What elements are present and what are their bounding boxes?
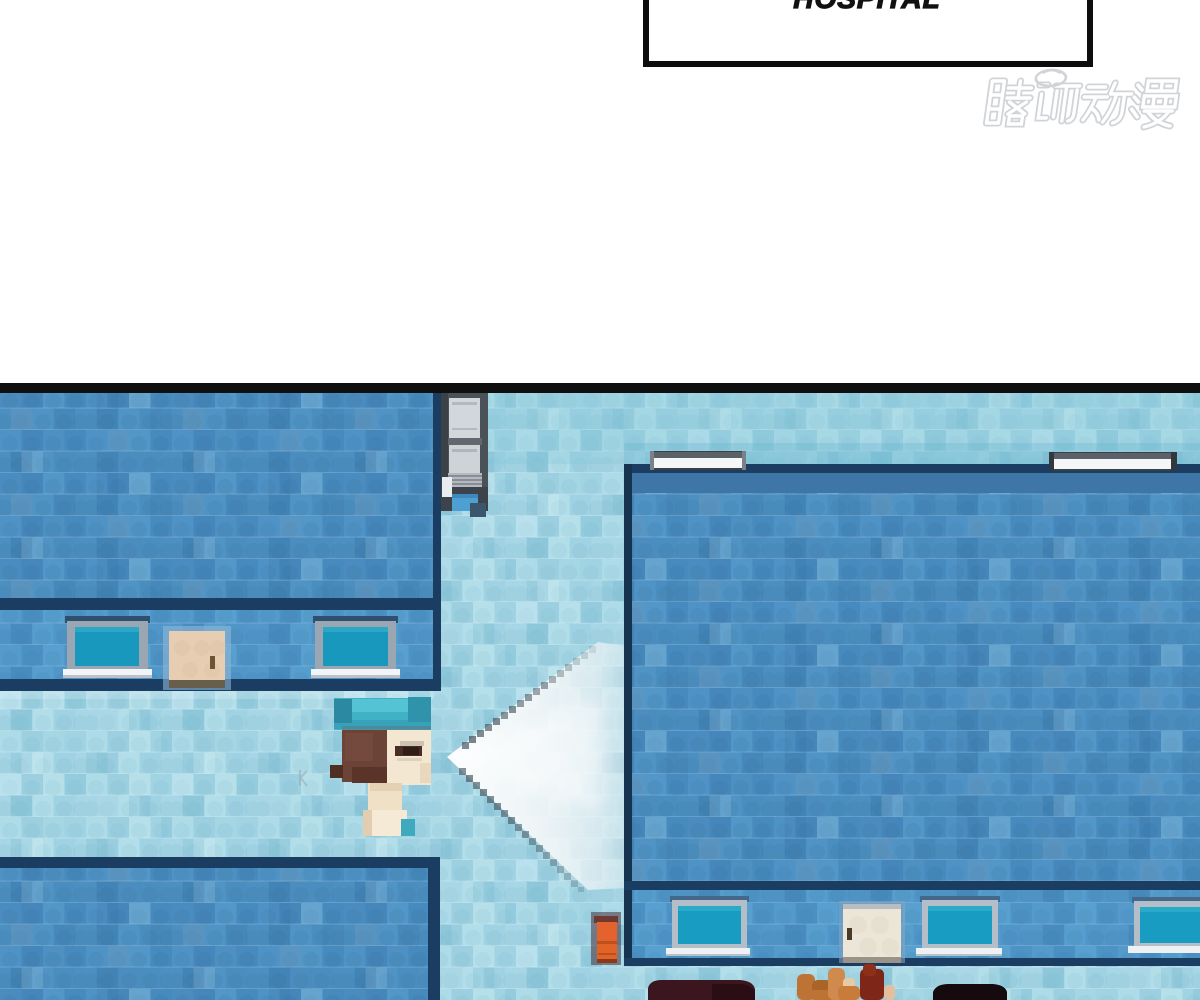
svg-text:HOSPITAL: HOSPITAL xyxy=(793,0,940,14)
